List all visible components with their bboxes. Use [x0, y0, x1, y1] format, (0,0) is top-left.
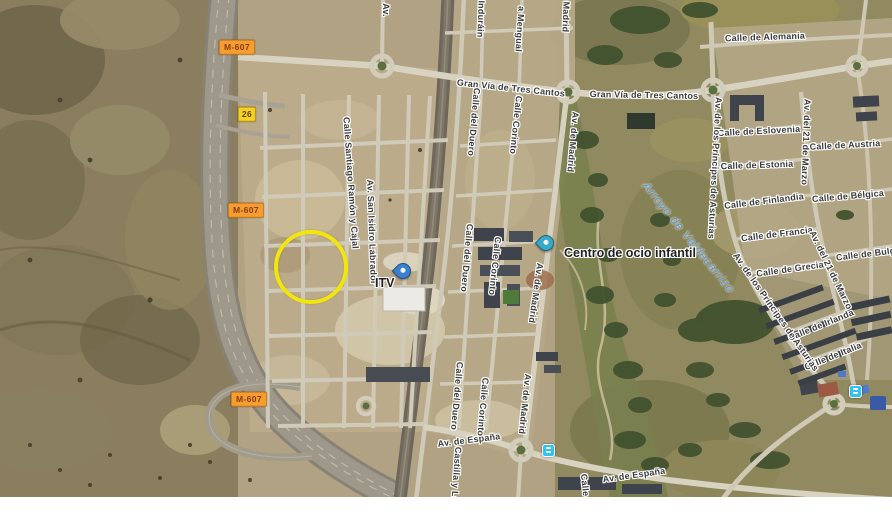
road-shield-m607: M-607 [231, 392, 267, 407]
map-viewport[interactable]: Calle de AlemaniaGran Vía de Tres Cantos… [0, 0, 892, 513]
satellite-map-canvas[interactable]: Calle de AlemaniaGran Vía de Tres Cantos… [0, 0, 892, 497]
poi-pin[interactable] [392, 260, 415, 283]
exit-number-shield: 26 [238, 107, 256, 122]
transit-stop-icon[interactable] [542, 444, 555, 457]
poi-label[interactable]: Centro de ocio infantil [564, 246, 696, 260]
map-overlay-layer: M-60726M-607M-607Centro de ocio infantil… [0, 0, 892, 497]
transit-stop-icon[interactable] [849, 385, 862, 398]
highlight-circle [274, 230, 348, 304]
poi-pin[interactable] [535, 232, 558, 255]
poi-label[interactable]: ITV [375, 276, 394, 290]
road-shield-m607: M-607 [228, 203, 264, 218]
road-shield-m607: M-607 [219, 40, 255, 55]
page-margin [0, 497, 892, 513]
